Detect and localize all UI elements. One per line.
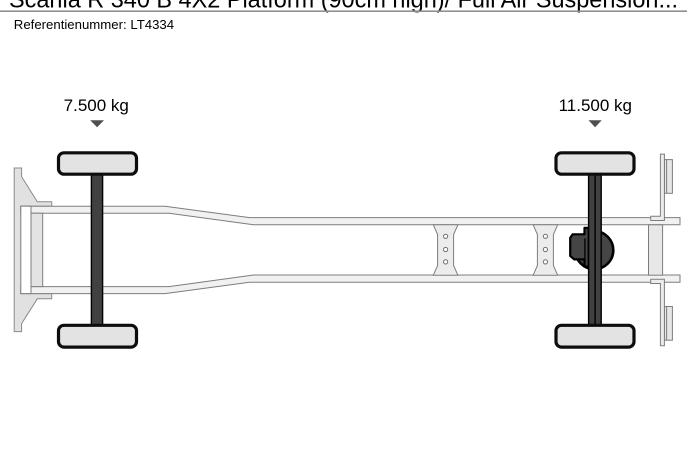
svg-text:Referentienummer: LT4334: Referentienummer: LT4334: [14, 17, 174, 32]
svg-text:11.500 kg: 11.500 kg: [559, 96, 632, 115]
svg-text:7.500 kg: 7.500 kg: [64, 96, 129, 115]
